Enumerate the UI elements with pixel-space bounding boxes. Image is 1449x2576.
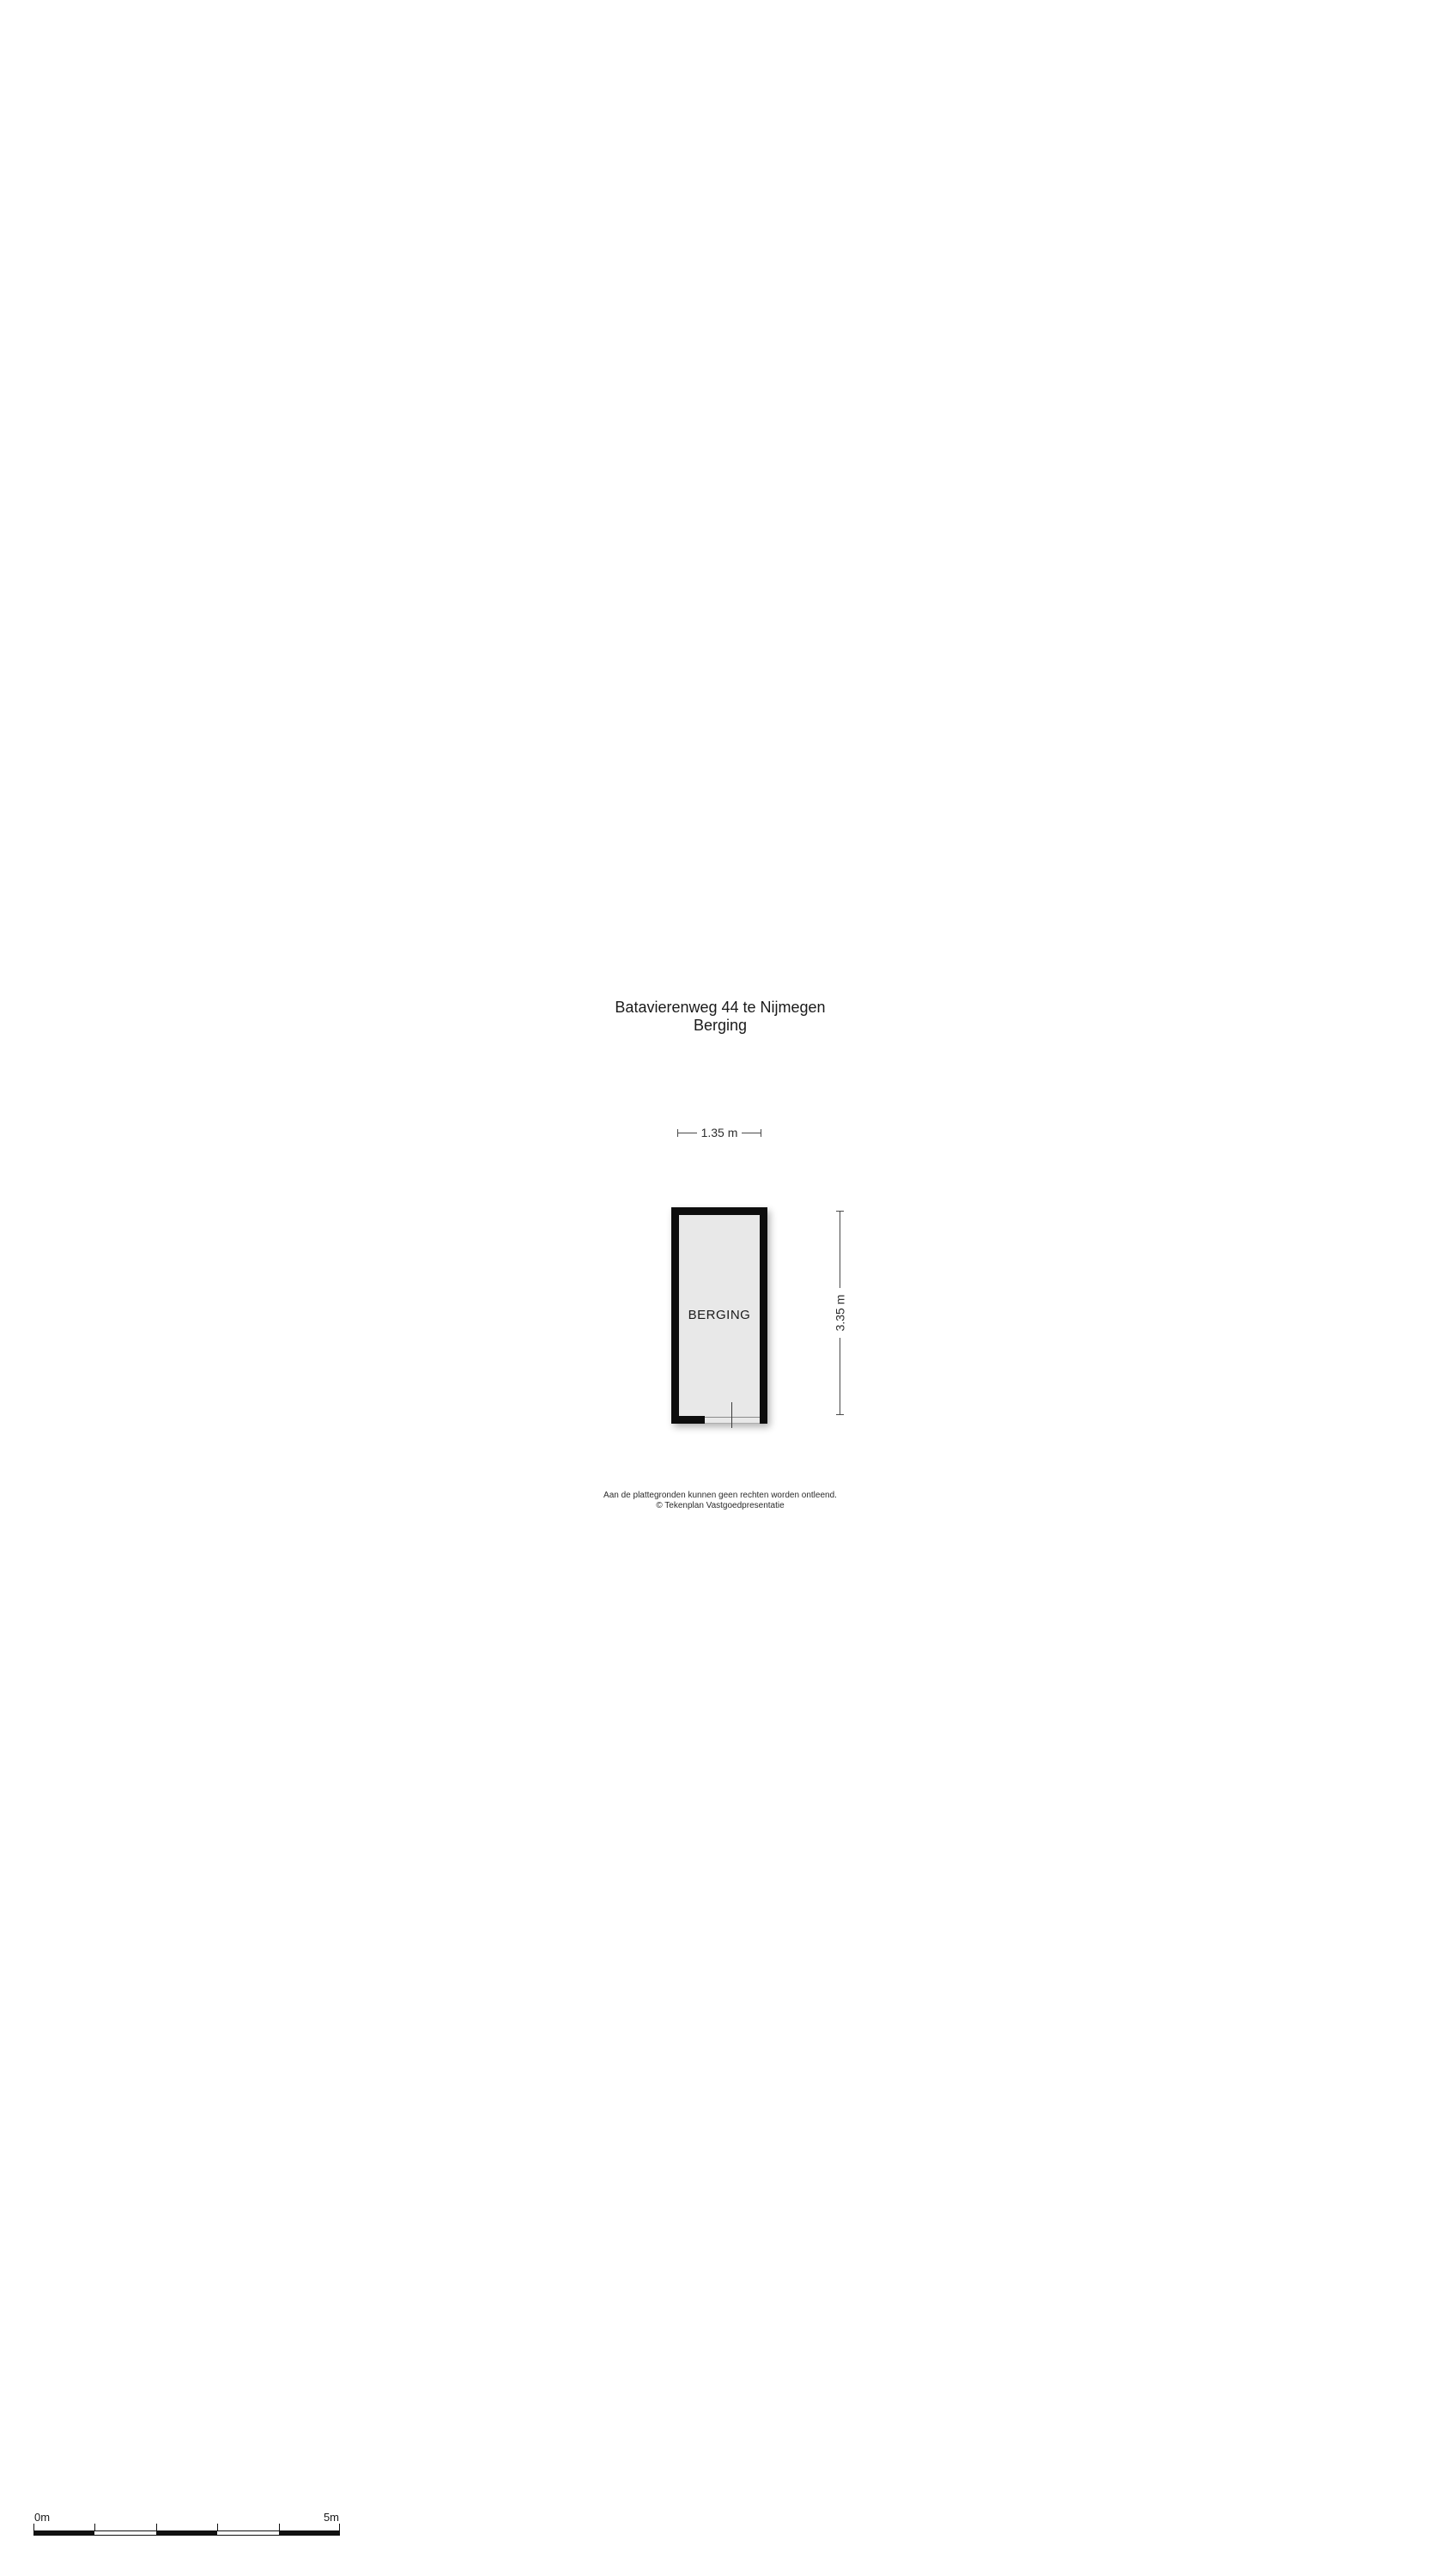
disclaimer-line-1: Aan de plattegronden kunnen geen rechten… [291, 1491, 1149, 1501]
scale-bar-segment [279, 2530, 340, 2536]
disclaimer-line-2: © Tekenplan Vastgoedpresentatie [291, 1501, 1149, 1511]
height-dimension-label-wrap: 3.35 m [833, 1288, 847, 1338]
page-title: Batavierenweg 44 te Nijmegen [291, 999, 1149, 1017]
height-dimension-label: 3.35 m [834, 1295, 847, 1332]
scale-bar-tick [94, 2524, 95, 2531]
scale-bar-segment [33, 2530, 94, 2536]
dimension-line [742, 1133, 761, 1133]
scale-bar-tick [156, 2524, 157, 2531]
scale-bar-segment [156, 2530, 217, 2536]
scale-end-label: 5m [324, 2511, 339, 2524]
dimension-line [678, 1133, 697, 1133]
dimension-tick-right [761, 1129, 761, 1137]
scale-bar-segment [94, 2530, 155, 2536]
title-block: Batavierenweg 44 te Nijmegen Berging [291, 999, 1149, 1035]
scale-bar-tick [217, 2524, 218, 2531]
page-subtitle: Berging [291, 1017, 1149, 1035]
room-berging: BERGING [671, 1207, 767, 1424]
scale-bar-segment [217, 2530, 278, 2536]
scale-start-label: 0m [34, 2511, 50, 2524]
scale-bar-tick [33, 2524, 34, 2531]
dimension-line [840, 1212, 840, 1288]
disclaimer: Aan de plattegronden kunnen geen rechten… [291, 1491, 1149, 1511]
wall-top [671, 1207, 767, 1215]
scale-bar-track [33, 2530, 340, 2536]
scale-bar: 0m 5m [33, 2511, 340, 2537]
scale-bar-tick [279, 2524, 280, 2531]
width-dimension: 1.35 m [677, 1126, 761, 1139]
door-opening [705, 1417, 760, 1424]
dimension-line [840, 1338, 840, 1414]
door-marker-line [731, 1402, 732, 1428]
width-dimension-label: 1.35 m [697, 1126, 743, 1139]
height-dimension: 3.35 m [833, 1211, 847, 1415]
wall-bottom [671, 1416, 705, 1424]
floorplan-page: Batavierenweg 44 te Nijmegen Berging 1.3… [0, 0, 1449, 2576]
room-label: BERGING [671, 1308, 767, 1322]
dimension-tick-bottom [836, 1414, 844, 1415]
scale-bar-tick [339, 2524, 340, 2531]
